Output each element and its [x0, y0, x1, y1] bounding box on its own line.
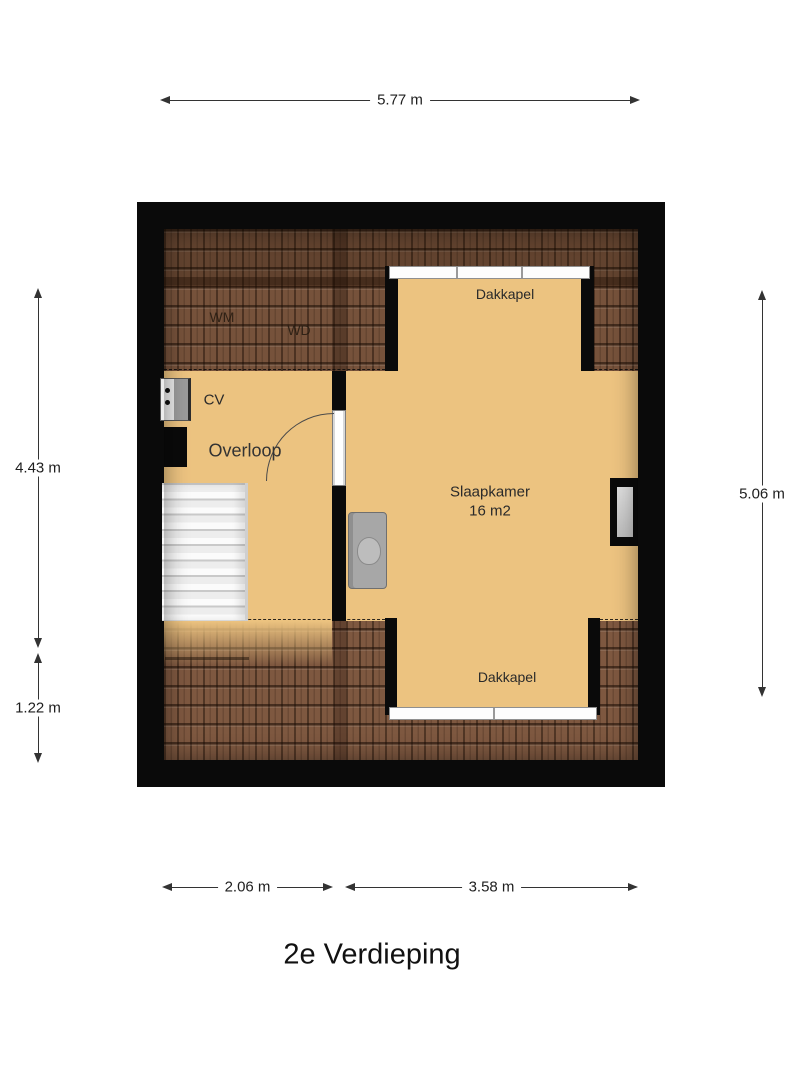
- page-title: 2e Verdieping: [283, 939, 460, 972]
- stairs: [162, 483, 248, 621]
- window-divider: [493, 708, 495, 719]
- wall-protrusion: [137, 427, 187, 467]
- window-divider: [521, 267, 523, 278]
- arrow-left-icon: [162, 883, 172, 891]
- dormer-bottom-wall-left: [385, 618, 397, 715]
- interior-wall: [332, 371, 346, 621]
- arrow-down-icon: [34, 753, 42, 763]
- dimension-right: 5.06 m: [755, 290, 769, 697]
- door-leaf: [332, 410, 346, 486]
- label-bedroom: Slaapkamer 16 m2: [450, 483, 530, 521]
- arrow-right-icon: [628, 883, 638, 891]
- washbasin-bowl: [357, 537, 381, 565]
- arrow-up-icon: [758, 290, 766, 300]
- dimension-left-lower: 1.22 m: [31, 653, 45, 763]
- label-boiler: CV: [204, 392, 225, 409]
- dormer-bottom-wall-right: [588, 618, 600, 715]
- eave-dash-bottom-right: [600, 619, 638, 620]
- dormer-top-wall-right: [581, 266, 594, 371]
- eave-dash-top-left: [164, 369, 385, 370]
- dimension-label: 5.06 m: [732, 485, 792, 502]
- eave-dash-top-right: [594, 369, 638, 370]
- dimension-label: 2.06 m: [218, 879, 278, 896]
- dimension-label: 3.58 m: [462, 879, 522, 896]
- dimension-label: 1.22 m: [8, 700, 68, 717]
- boiler-knob: [165, 400, 170, 405]
- dormer-bottom-floor: [397, 618, 588, 709]
- niche-window: [617, 487, 633, 537]
- label-dryer: WD: [287, 322, 310, 338]
- boiler-knob: [165, 388, 170, 393]
- floorplan-page: 5.77 m 4.43 m 1.22 m 5.06 m 2.06 m 3.58 …: [0, 0, 800, 1067]
- window-divider: [456, 267, 458, 278]
- bedroom-name: Slaapkamer: [450, 483, 530, 502]
- dormer-top-wall-left: [385, 266, 398, 371]
- arrow-left-icon: [160, 96, 170, 104]
- dormer-bottom-window: [389, 707, 597, 720]
- arrow-down-icon: [758, 687, 766, 697]
- dimension-left-upper: 4.43 m: [31, 288, 45, 648]
- wall-niche: [610, 478, 638, 546]
- washbasin: [348, 512, 387, 589]
- arrow-left-icon: [345, 883, 355, 891]
- dimension-label: 4.43 m: [8, 460, 68, 477]
- roof-ridge-vertical-bottom: [334, 621, 346, 760]
- roof-ridge-vertical-top: [332, 229, 346, 371]
- dimension-label: 5.77 m: [370, 92, 430, 109]
- arrow-up-icon: [34, 653, 42, 663]
- dormer-top-window: [389, 266, 590, 279]
- dimension-top-width: 5.77 m: [160, 93, 640, 107]
- arrow-up-icon: [34, 288, 42, 298]
- stairs-hidden-edge: [165, 657, 249, 660]
- dimension-bottom-right: 3.58 m: [345, 880, 638, 894]
- floorplan: WM WD CV Overloop Dakkapel Dakkapel Slaa…: [137, 202, 665, 787]
- label-dormer-top: Dakkapel: [476, 286, 534, 302]
- dimension-bottom-left: 2.06 m: [162, 880, 333, 894]
- bedroom-area: 16 m2: [450, 502, 530, 521]
- label-washing-machine: WM: [210, 309, 235, 325]
- arrow-right-icon: [630, 96, 640, 104]
- boiler-unit: [160, 378, 191, 421]
- label-landing: Overloop: [208, 441, 281, 462]
- arrow-down-icon: [34, 638, 42, 648]
- arrow-right-icon: [323, 883, 333, 891]
- label-dormer-bottom: Dakkapel: [478, 669, 536, 685]
